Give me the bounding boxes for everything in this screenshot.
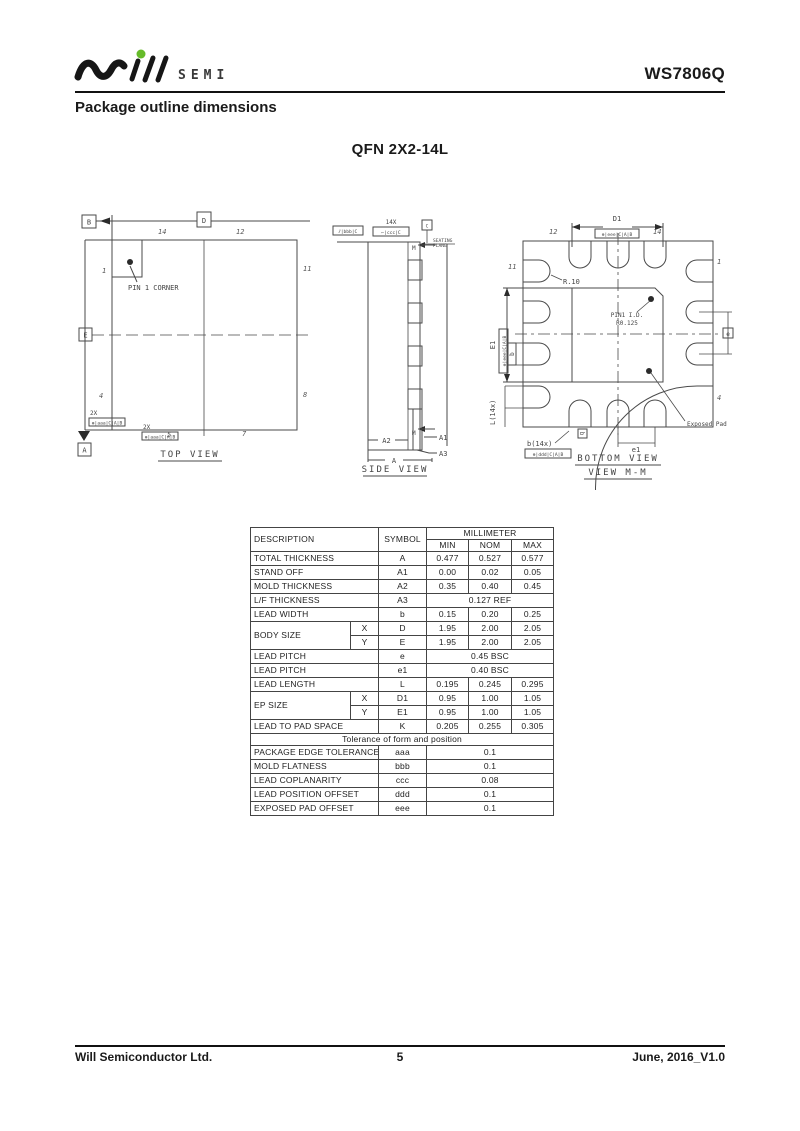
lead-qty-callout: 14X	[386, 219, 397, 226]
cell-nom: 2.00	[469, 636, 512, 650]
dim-arrow	[572, 224, 580, 230]
pin-number: 1	[717, 258, 721, 266]
col-header-max: MAX	[512, 540, 554, 552]
dim-b-label: b	[578, 432, 585, 436]
table-row: EP SIZE X D1 0.95 1.00 1.05	[251, 692, 554, 706]
cell-nom: 1.00	[469, 706, 512, 720]
dim-a3-label: A3	[439, 450, 447, 458]
cell-max: 0.295	[512, 678, 554, 692]
cell-sym: L	[379, 678, 427, 692]
datasheet-page: SEMI WS7806Q Package outline dimensions …	[0, 0, 800, 1131]
cell-axis: Y	[351, 636, 379, 650]
lead-pad	[569, 400, 591, 427]
page-title: Package outline dimensions	[75, 99, 277, 116]
cell-min: 0.195	[427, 678, 469, 692]
parallelism-frame-text: ⫽|bbb|C	[338, 229, 358, 235]
footer-divider	[75, 1045, 725, 1047]
table-section-row: Tolerance of form and position	[251, 734, 554, 746]
cell-min: 1.95	[427, 636, 469, 650]
cell-sym: E	[379, 636, 427, 650]
pin-number: 12	[236, 228, 244, 236]
tolerance-frame-text: ⊕|aaa|C|A|B	[145, 435, 176, 441]
cell-nom: 0.255	[469, 720, 512, 734]
datum-a-triangle	[78, 431, 90, 441]
dim-b-box-bottom: b	[578, 429, 587, 438]
footer-version: June, 2016_V1.0	[632, 1050, 725, 1064]
datum-c-label: C	[426, 224, 429, 230]
exposed-pad-label: Exposed Pad	[687, 421, 727, 428]
logo-i-stem	[132, 61, 138, 79]
side-view-drawing: ⫽|bbb|C 14X ⌐|ccc|C C M SEATING PLANE M …	[325, 200, 475, 485]
cell-sym: b	[379, 608, 427, 622]
cell-min: 0.35	[427, 580, 469, 594]
bottom-view-subtitle: VIEW M-M	[588, 468, 647, 478]
cell-min: 1.95	[427, 622, 469, 636]
cell-sym: eee	[379, 802, 427, 816]
cell-nom: 0.40	[469, 580, 512, 594]
logo-green-dot	[137, 50, 146, 59]
pin1-id-label: R0.125	[616, 320, 638, 327]
cell-desc: PACKAGE EDGE TOLERANCE	[251, 746, 379, 760]
seating-plane-label: PLANE	[433, 243, 447, 249]
table-row: PACKAGE EDGE TOLERANCE aaa 0.1	[251, 746, 554, 760]
cell-max: 2.05	[512, 636, 554, 650]
col-header-min: MIN	[427, 540, 469, 552]
side-view-construction-lines	[337, 230, 455, 462]
pin-number: 4	[99, 392, 103, 400]
tolerance-frame-text: ⊕|aaa|C|A|B	[92, 421, 123, 427]
dim-e1-pitch-label: e1	[632, 446, 640, 454]
pin-number: 12	[549, 228, 557, 236]
dimension-table: DESCRIPTION SYMBOL MILLIMETER MIN NOM MA…	[250, 527, 554, 816]
dim-d1-label: D1	[613, 215, 621, 223]
datum-b-label: B	[87, 219, 91, 227]
table-row: LEAD COPLANARITY ccc 0.08	[251, 774, 554, 788]
section-m-bottom: M	[412, 430, 416, 437]
company-logo: SEMI	[72, 46, 252, 94]
cell-sym: D	[379, 622, 427, 636]
lead-pad	[523, 301, 550, 323]
bottom-view-title: BOTTOM VIEW	[577, 454, 659, 464]
cell-axis: Y	[351, 706, 379, 720]
cell-max: 0.305	[512, 720, 554, 734]
cell-max: 0.45	[512, 580, 554, 594]
tolerance-frame-text: ⊕|ddd|C|A|B	[533, 452, 564, 458]
cell-span: 0.127 REF	[427, 594, 554, 608]
dim-d-label: D	[202, 217, 206, 225]
logo-slash-2	[158, 58, 166, 80]
bottom-view-drawing: D1 ⊕|eee|C|A|B E1 ⊕|eee|C|A|B R.10 PIN1 …	[485, 205, 775, 490]
table-row: LEAD PITCH e 0.45 BSC	[251, 650, 554, 664]
table-row: MOLD FLATNESS bbb 0.1	[251, 760, 554, 774]
dim-arrow	[504, 288, 510, 296]
cell-span: 0.1	[427, 788, 554, 802]
col-header-symbol: SYMBOL	[379, 528, 427, 552]
cell-sym: bbb	[379, 760, 427, 774]
cell-desc: MOLD FLATNESS	[251, 760, 379, 774]
pin1-corner-box	[112, 240, 142, 277]
cell-min: 0.15	[427, 608, 469, 622]
coplanarity-frame-text: ⌐|ccc|C	[381, 230, 401, 236]
dim-e1-label: E1	[489, 341, 497, 349]
pin-number: 1	[102, 267, 106, 275]
table-row: LEAD POSITION OFFSET ddd 0.1	[251, 788, 554, 802]
qty-callout: 2X	[143, 424, 151, 431]
top-view-drawing: B D E A PIN 1 CORNER 14 12 1 11 4 8 5 7 …	[70, 200, 320, 470]
cell-nom: 1.00	[469, 692, 512, 706]
pin-number: 11	[508, 263, 516, 271]
cell-desc: TOTAL THICKNESS	[251, 552, 379, 566]
cell-span: 0.1	[427, 746, 554, 760]
cell-desc: LEAD WIDTH	[251, 608, 379, 622]
cell-sym: A1	[379, 566, 427, 580]
cell-desc: EP SIZE	[251, 692, 351, 720]
cell-axis: X	[351, 622, 379, 636]
package-name: QFN 2X2-14L	[0, 141, 800, 158]
dim-b-qty-label: b(14x)	[527, 440, 552, 448]
cell-nom: 0.20	[469, 608, 512, 622]
cell-nom: 0.245	[469, 678, 512, 692]
top-view-construction-lines	[85, 215, 312, 436]
cell-desc: LEAD PITCH	[251, 664, 379, 678]
table-row: MOLD THICKNESS A2 0.35 0.40 0.45	[251, 580, 554, 594]
dim-e-label: E	[83, 332, 87, 340]
pin1-id-label: PIN1 I.D.	[611, 312, 644, 319]
top-view-title: TOP VIEW	[160, 450, 219, 460]
dim-arrow	[100, 218, 110, 225]
cell-min: 0.95	[427, 706, 469, 720]
cell-sym: e1	[379, 664, 427, 678]
table-row: LEAD TO PAD SPACE K 0.205 0.255 0.305	[251, 720, 554, 734]
cell-sym: A3	[379, 594, 427, 608]
lead-pad	[644, 400, 666, 427]
pin-number: 14	[653, 228, 661, 236]
dim-e1-group: E1 ⊕|eee|C|A|B	[489, 329, 508, 373]
cell-sym: E1	[379, 706, 427, 720]
cell-max: 1.05	[512, 692, 554, 706]
cell-max: 0.25	[512, 608, 554, 622]
cell-desc: BODY SIZE	[251, 622, 351, 650]
cell-max: 1.05	[512, 706, 554, 720]
table-row: L/F THICKNESS A3 0.127 REF	[251, 594, 554, 608]
logo-wave	[78, 63, 124, 77]
cell-max: 2.05	[512, 622, 554, 636]
datum-a-label: A	[82, 447, 87, 455]
cell-sym: aaa	[379, 746, 427, 760]
dim-a1-label: A1	[439, 434, 447, 442]
col-header-unit: MILLIMETER	[427, 528, 554, 540]
pin-number: 8	[303, 391, 307, 399]
cell-desc: LEAD TO PAD SPACE	[251, 720, 379, 734]
pin1-dot	[127, 259, 133, 265]
cell-span: 0.08	[427, 774, 554, 788]
cell-sym: D1	[379, 692, 427, 706]
table-row: STAND OFF A1 0.00 0.02 0.05	[251, 566, 554, 580]
col-header-nom: NOM	[469, 540, 512, 552]
pin-number: 11	[303, 265, 311, 273]
dim-b-label: b	[509, 352, 516, 356]
table-row: LEAD WIDTH b 0.15 0.20 0.25	[251, 608, 554, 622]
cell-sym: ccc	[379, 774, 427, 788]
pin-number: 4	[717, 394, 721, 402]
dim-a2-label: A2	[382, 437, 390, 445]
table-row: TOTAL THICKNESS A 0.477 0.527 0.577	[251, 552, 554, 566]
cell-desc: LEAD COPLANARITY	[251, 774, 379, 788]
pin1-id-dot	[648, 296, 654, 302]
cell-min: 0.00	[427, 566, 469, 580]
side-view-title: SIDE VIEW	[362, 465, 429, 475]
cell-desc: EXPOSED PAD OFFSET	[251, 802, 379, 816]
lead-pad	[523, 260, 550, 282]
exposed-pad	[572, 288, 663, 382]
tolerance-section-title: Tolerance of form and position	[251, 734, 554, 746]
section-m-top: M	[412, 245, 416, 252]
lead-pad	[686, 260, 713, 282]
cell-span: 0.1	[427, 802, 554, 816]
table-row: EXPOSED PAD OFFSET eee 0.1	[251, 802, 554, 816]
tolerance-frame-text: ⊕|eee|C|A|B	[602, 232, 633, 238]
cell-span: 0.45 BSC	[427, 650, 554, 664]
dim-a-label: A	[392, 457, 397, 465]
radius-label: R.10	[563, 278, 580, 286]
cell-desc: STAND OFF	[251, 566, 379, 580]
cell-nom: 2.00	[469, 622, 512, 636]
col-header-description: DESCRIPTION	[251, 528, 379, 552]
pin1-corner-label: PIN 1 CORNER	[128, 284, 179, 292]
cell-sym: A2	[379, 580, 427, 594]
cell-desc: LEAD PITCH	[251, 650, 379, 664]
cell-sym: K	[379, 720, 427, 734]
logo-brand-text: SEMI	[178, 68, 229, 83]
cell-min: 0.95	[427, 692, 469, 706]
cell-sym: A	[379, 552, 427, 566]
cell-desc: L/F THICKNESS	[251, 594, 379, 608]
qty-callout: 2X	[90, 410, 98, 417]
dim-l-group: L(14x)	[489, 400, 497, 425]
cell-axis: X	[351, 692, 379, 706]
cell-desc: LEAD POSITION OFFSET	[251, 788, 379, 802]
table-row: LEAD PITCH e1 0.40 BSC	[251, 664, 554, 678]
cell-nom: 0.02	[469, 566, 512, 580]
pin-number: 7	[242, 430, 247, 438]
header-divider	[75, 91, 725, 93]
cell-max: 0.577	[512, 552, 554, 566]
exposed-pad-dot	[646, 368, 652, 374]
cell-nom: 0.527	[469, 552, 512, 566]
table-row: LEAD LENGTH L 0.195 0.245 0.295	[251, 678, 554, 692]
cell-desc: LEAD LENGTH	[251, 678, 379, 692]
cell-sym: e	[379, 650, 427, 664]
dim-e-label: e	[726, 331, 730, 338]
bottom-view-construction-lines	[503, 223, 732, 490]
pin-number: 14	[158, 228, 166, 236]
cell-span: 0.40 BSC	[427, 664, 554, 678]
cell-span: 0.1	[427, 760, 554, 774]
cell-desc: MOLD THICKNESS	[251, 580, 379, 594]
logo-slash-1	[145, 58, 153, 80]
table-row: BODY SIZE X D 1.95 2.00 2.05	[251, 622, 554, 636]
lead-pad	[523, 343, 550, 365]
cell-min: 0.477	[427, 552, 469, 566]
dim-arrow	[504, 374, 510, 382]
dim-l-label: L(14x)	[489, 400, 497, 425]
part-number: WS7806Q	[644, 64, 725, 84]
cell-max: 0.05	[512, 566, 554, 580]
cell-sym: ddd	[379, 788, 427, 802]
cell-min: 0.205	[427, 720, 469, 734]
lead-pad	[523, 386, 550, 408]
